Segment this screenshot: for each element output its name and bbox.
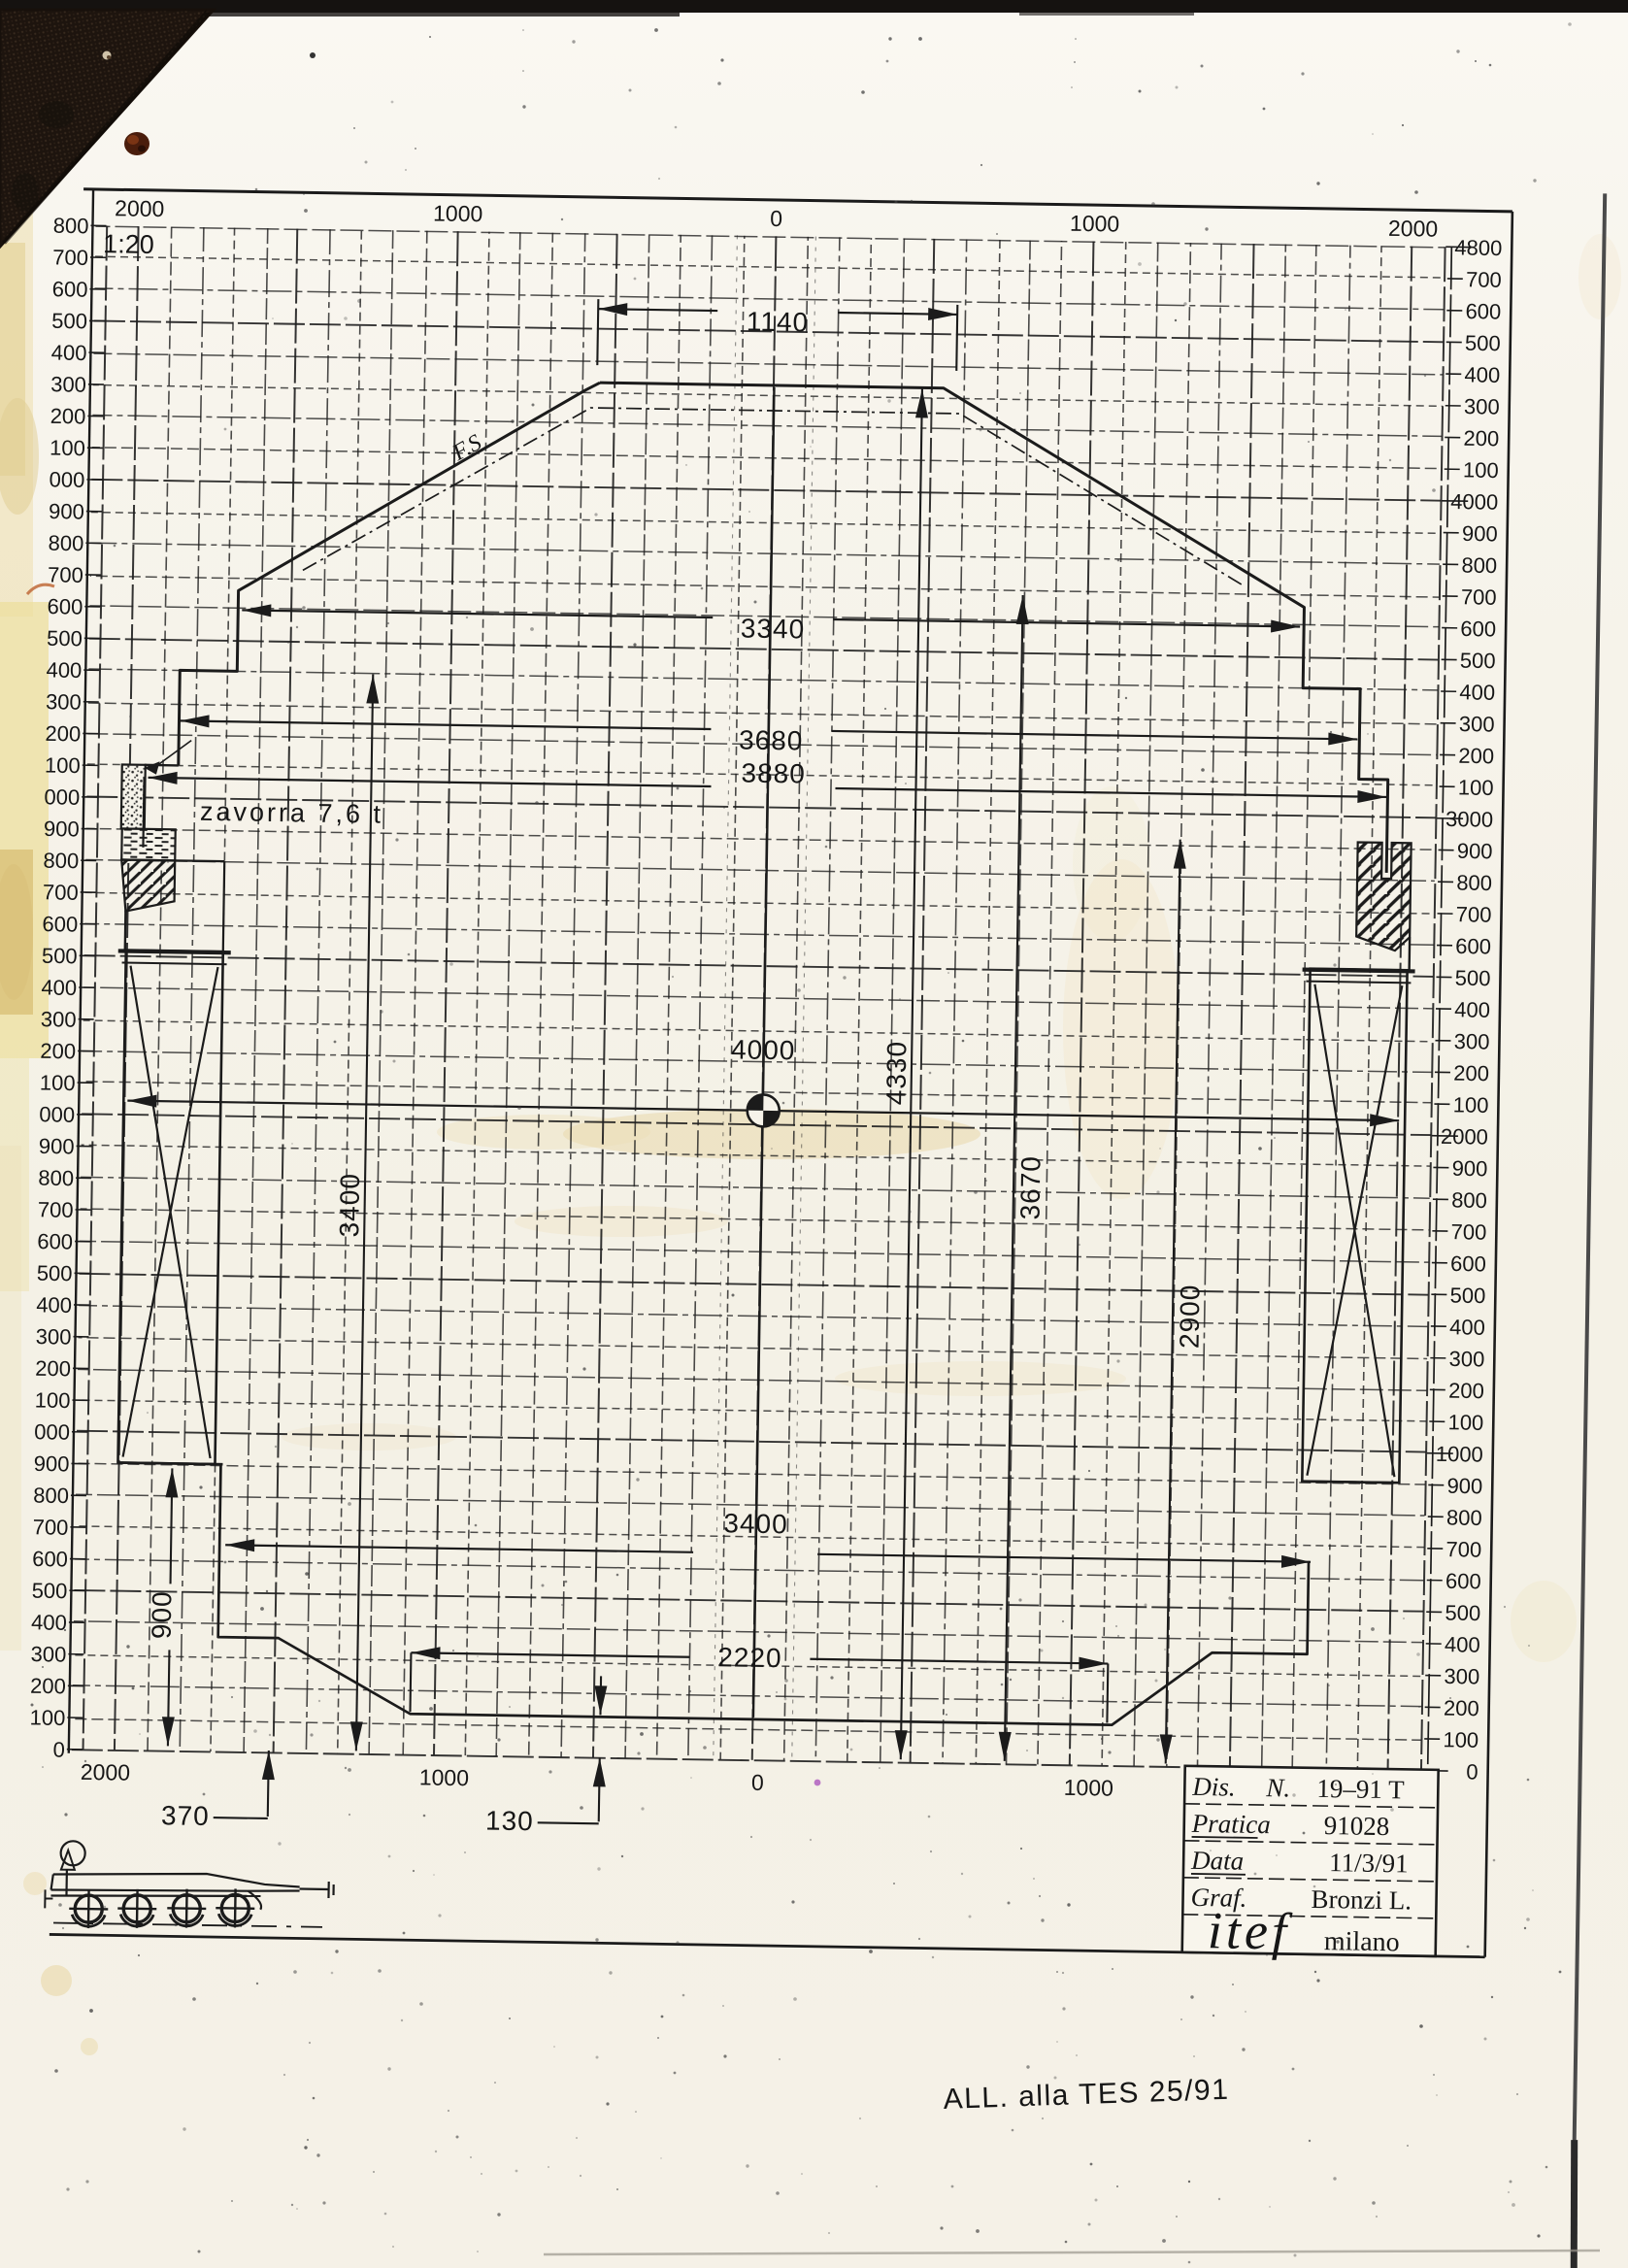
- svg-text:600: 600: [47, 594, 83, 619]
- svg-text:600: 600: [37, 1229, 73, 1254]
- svg-text:600: 600: [42, 912, 78, 937]
- svg-text:0: 0: [52, 1737, 65, 1761]
- svg-text:4330: 4330: [880, 1041, 912, 1106]
- svg-text:500: 500: [42, 944, 78, 969]
- svg-text:0: 0: [1466, 1759, 1478, 1784]
- svg-text:800: 800: [1456, 870, 1492, 895]
- svg-text:500: 500: [1465, 331, 1501, 356]
- svg-text:100: 100: [45, 753, 81, 779]
- svg-text:400: 400: [1464, 362, 1500, 387]
- svg-text:200: 200: [1448, 1379, 1484, 1404]
- svg-text:3400: 3400: [334, 1173, 365, 1238]
- svg-text:200: 200: [45, 721, 81, 747]
- svg-text:N.: N.: [1265, 1773, 1290, 1802]
- svg-text:400: 400: [31, 1610, 67, 1635]
- svg-text:2900: 2900: [1174, 1284, 1205, 1349]
- svg-text:3340: 3340: [741, 613, 806, 644]
- svg-text:900: 900: [1462, 521, 1498, 547]
- svg-text:900: 900: [34, 1451, 70, 1477]
- svg-text:900: 900: [147, 1590, 178, 1639]
- svg-text:100: 100: [1443, 1727, 1478, 1752]
- svg-text:900: 900: [39, 1134, 75, 1159]
- svg-text:200: 200: [50, 404, 85, 429]
- svg-text:itef: itef: [1208, 1901, 1294, 1960]
- svg-text:800: 800: [1446, 1505, 1482, 1530]
- svg-text:000: 000: [44, 784, 80, 810]
- svg-text:400: 400: [1449, 1315, 1485, 1340]
- svg-text:200: 200: [1444, 1696, 1479, 1721]
- svg-text:11/3/91: 11/3/91: [1329, 1848, 1409, 1878]
- svg-text:200: 200: [35, 1356, 71, 1382]
- svg-text:700: 700: [1461, 584, 1497, 610]
- svg-text:200: 200: [30, 1674, 66, 1699]
- svg-text:600: 600: [1460, 617, 1496, 642]
- svg-text:100: 100: [1458, 775, 1494, 800]
- svg-text:200: 200: [40, 1039, 76, 1064]
- svg-text:1140: 1140: [747, 307, 810, 338]
- svg-text:200: 200: [1463, 426, 1499, 451]
- svg-text:1000: 1000: [1070, 211, 1120, 237]
- svg-text:000: 000: [39, 1102, 75, 1127]
- svg-text:100: 100: [1447, 1410, 1483, 1435]
- svg-text:300: 300: [1459, 712, 1495, 737]
- svg-text:700: 700: [1466, 267, 1502, 292]
- svg-text:400: 400: [1459, 680, 1495, 705]
- svg-text:2000: 2000: [81, 1759, 131, 1785]
- svg-text:130: 130: [485, 1805, 534, 1836]
- svg-text:370: 370: [161, 1800, 210, 1831]
- svg-text:500: 500: [1449, 1284, 1485, 1309]
- svg-text:400: 400: [46, 657, 82, 683]
- svg-text:300: 300: [50, 372, 86, 397]
- svg-text:Bronzi L.: Bronzi L.: [1311, 1884, 1412, 1916]
- svg-text:700: 700: [1456, 902, 1492, 927]
- svg-text:2000: 2000: [1388, 216, 1439, 242]
- svg-text:600: 600: [1465, 299, 1501, 324]
- svg-text:Dis.: Dis.: [1191, 1772, 1236, 1802]
- svg-text:700: 700: [43, 880, 79, 905]
- svg-text:600: 600: [1445, 1569, 1481, 1594]
- svg-text:400: 400: [41, 975, 77, 1000]
- svg-text:700: 700: [48, 562, 83, 587]
- svg-text:900: 900: [1457, 839, 1493, 864]
- svg-text:700: 700: [33, 1515, 69, 1540]
- svg-text:700: 700: [52, 245, 88, 270]
- svg-text:500: 500: [1445, 1600, 1480, 1625]
- svg-text:800: 800: [33, 1484, 69, 1509]
- svg-text:500: 500: [51, 309, 87, 334]
- svg-text:3680: 3680: [739, 724, 804, 755]
- svg-text:800: 800: [38, 1166, 74, 1191]
- svg-text:200: 200: [1453, 1061, 1489, 1086]
- svg-text:300: 300: [1464, 394, 1500, 419]
- svg-text:3880: 3880: [741, 757, 806, 788]
- svg-text:300: 300: [1454, 1029, 1490, 1054]
- svg-text:300: 300: [36, 1324, 72, 1350]
- svg-text:100: 100: [50, 436, 85, 461]
- svg-text:700: 700: [1450, 1219, 1486, 1245]
- svg-text:300: 300: [46, 689, 82, 715]
- svg-text:100: 100: [35, 1387, 71, 1413]
- svg-text:800: 800: [43, 849, 79, 874]
- svg-text:500: 500: [37, 1261, 73, 1286]
- svg-text:400: 400: [51, 340, 87, 365]
- svg-text:600: 600: [1455, 934, 1491, 959]
- svg-text:0: 0: [770, 206, 782, 231]
- svg-text:600: 600: [1450, 1251, 1486, 1277]
- svg-text:000: 000: [34, 1419, 70, 1445]
- svg-text:300: 300: [30, 1642, 66, 1667]
- svg-text:500: 500: [1455, 966, 1491, 991]
- svg-text:600: 600: [32, 1547, 68, 1572]
- svg-text:3400: 3400: [723, 1508, 788, 1539]
- svg-text:900: 900: [49, 499, 84, 524]
- svg-text:700: 700: [38, 1197, 74, 1222]
- svg-text:Pratica: Pratica: [1191, 1809, 1271, 1839]
- svg-text:zavorra 7,6 t: zavorra 7,6 t: [200, 797, 384, 829]
- svg-text:500: 500: [47, 626, 83, 651]
- svg-text:600: 600: [52, 277, 88, 302]
- svg-text:300: 300: [1444, 1664, 1479, 1689]
- svg-text:Data: Data: [1190, 1846, 1244, 1876]
- svg-text:300: 300: [41, 1007, 77, 1032]
- svg-text:1:20: 1:20: [103, 229, 154, 259]
- svg-text:000: 000: [49, 467, 84, 492]
- svg-text:800: 800: [53, 214, 89, 239]
- svg-text:1000: 1000: [433, 200, 483, 226]
- svg-text:2000: 2000: [115, 195, 165, 221]
- svg-text:milano: milano: [1324, 1926, 1400, 1957]
- svg-text:200: 200: [1458, 744, 1494, 769]
- svg-text:500: 500: [1460, 649, 1496, 674]
- svg-text:800: 800: [1461, 553, 1497, 579]
- svg-text:100: 100: [40, 1070, 76, 1095]
- svg-text:500: 500: [31, 1579, 67, 1604]
- svg-text:300: 300: [1448, 1347, 1484, 1372]
- svg-text:3670: 3670: [1015, 1155, 1047, 1220]
- svg-text:19–91 T: 19–91 T: [1316, 1774, 1405, 1804]
- svg-text:100: 100: [1463, 457, 1499, 483]
- svg-text:1000: 1000: [1064, 1775, 1114, 1801]
- svg-text:1000: 1000: [419, 1764, 470, 1790]
- svg-text:100: 100: [29, 1705, 65, 1730]
- svg-text:2220: 2220: [717, 1642, 782, 1673]
- svg-text:800: 800: [48, 531, 83, 556]
- svg-text:800: 800: [1451, 1187, 1487, 1213]
- svg-text:900: 900: [1451, 1156, 1487, 1182]
- svg-text:400: 400: [1454, 997, 1490, 1022]
- svg-text:700: 700: [1445, 1537, 1481, 1562]
- svg-text:100: 100: [1453, 1092, 1489, 1117]
- svg-text:4000: 4000: [731, 1034, 796, 1065]
- svg-text:91028: 91028: [1324, 1811, 1390, 1841]
- svg-text:900: 900: [44, 817, 80, 842]
- svg-text:0: 0: [751, 1770, 764, 1795]
- svg-text:400: 400: [1445, 1632, 1480, 1657]
- svg-text:400: 400: [36, 1292, 72, 1317]
- svg-text:900: 900: [1446, 1474, 1482, 1499]
